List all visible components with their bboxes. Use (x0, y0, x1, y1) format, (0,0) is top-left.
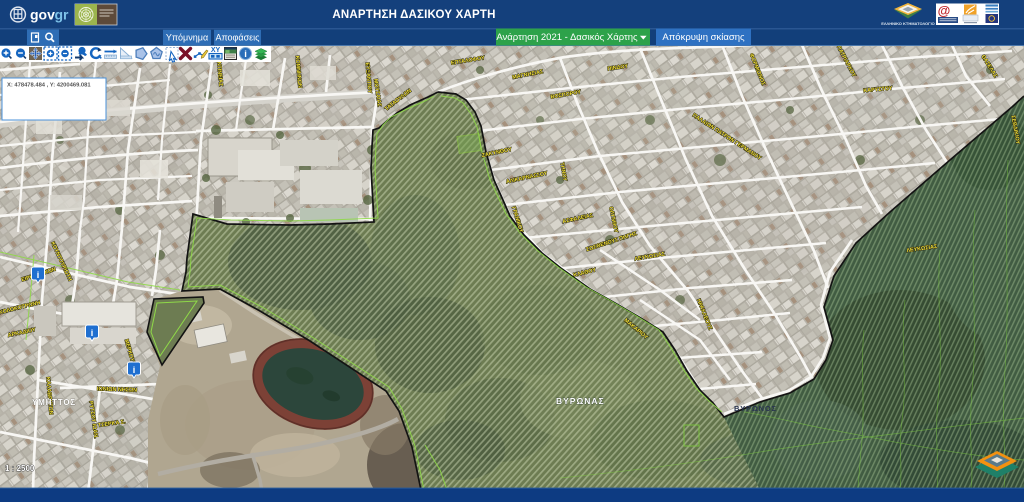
svg-text:ΥΜΗΤΤΟΣ: ΥΜΗΤΤΟΣ (32, 398, 76, 407)
svg-text:Ανάρτηση 2021 - Δασικός Χάρτης: Ανάρτηση 2021 - Δασικός Χάρτης (496, 32, 638, 43)
svg-text:X: 478478.484 , Y: 4200469.081: X: 478478.484 , Y: 4200469.081 (7, 83, 91, 89)
svg-text:ΑΝΑΡΤΗΣΗ ΔΑΣΙΚΟΥ ΧΑΡΤΗ: ΑΝΑΡΤΗΣΗ ΔΑΣΙΚΟΥ ΧΑΡΤΗ (332, 9, 495, 21)
svg-text:gr: gr (55, 7, 70, 23)
svg-text:i: i (91, 328, 94, 338)
svg-text:gov: gov (30, 7, 55, 23)
svg-text:i: i (37, 270, 40, 280)
svg-text:ΕΛΛΗΝΙΚΟ ΚΤΗΜΑΤΟΛΟΓΙΟ: ΕΛΛΗΝΙΚΟ ΚΤΗΜΑΤΟΛΟΓΙΟ (881, 21, 935, 26)
svg-text:ΒΥΡΩΝΑΣ: ΒΥΡΩΝΑΣ (556, 396, 605, 406)
svg-text:i: i (133, 365, 136, 375)
svg-text:Υπόμνημα: Υπόμνημα (166, 33, 208, 43)
svg-text:1 : 2500: 1 : 2500 (5, 464, 35, 473)
svg-text:ΒΥΡΩΝΟΣ: ΒΥΡΩΝΟΣ (734, 404, 777, 413)
svg-text:Απόκρυψη σκίασης: Απόκρυψη σκίασης (662, 32, 745, 43)
svg-text:Αποφάσεις: Αποφάσεις (215, 33, 260, 43)
svg-text:i: i (244, 49, 247, 60)
svg-text:@: @ (938, 3, 951, 18)
